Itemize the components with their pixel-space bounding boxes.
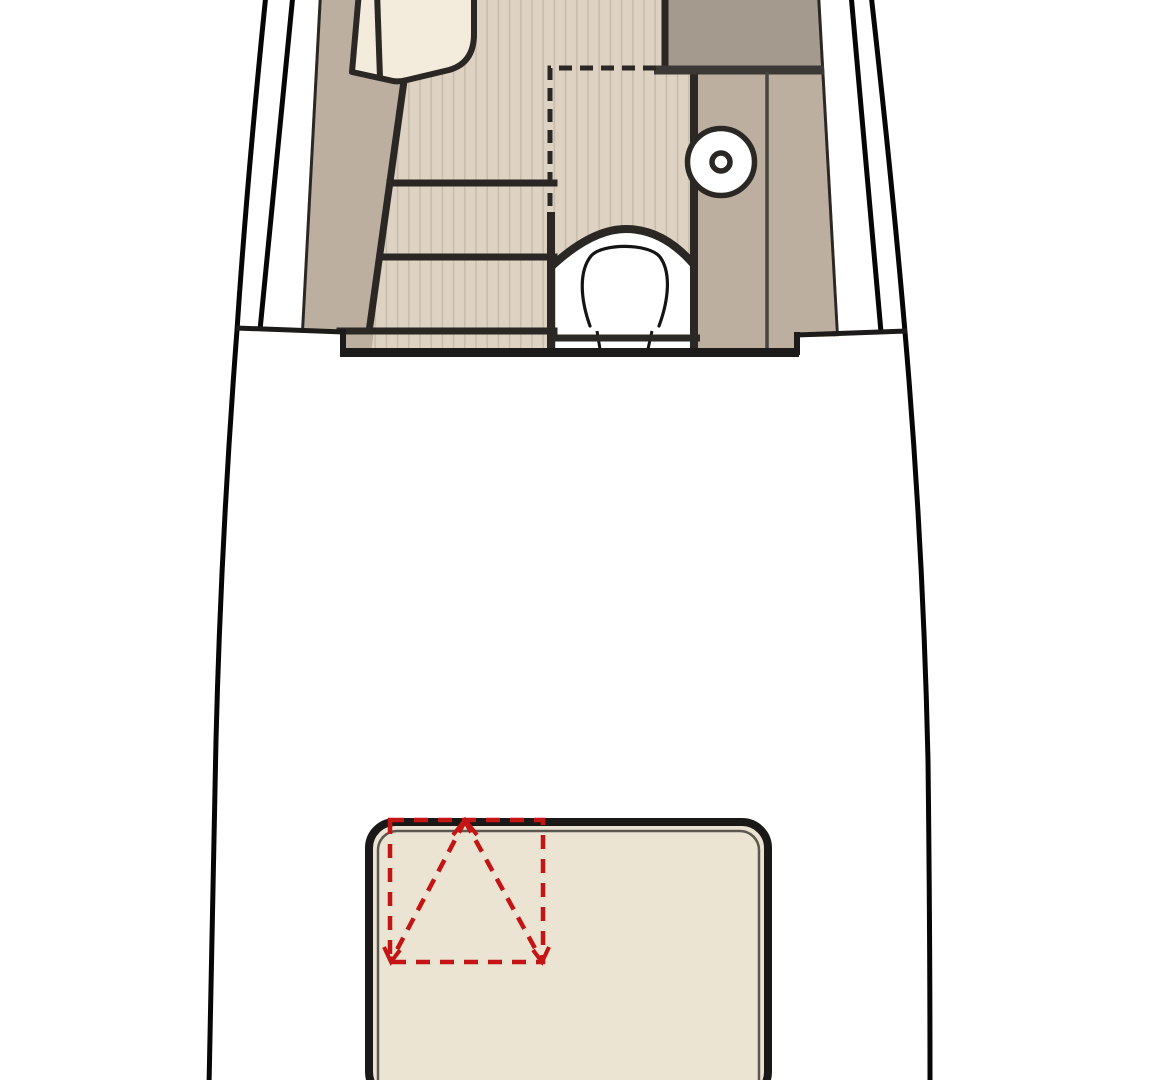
foredeck bbox=[369, 820, 768, 1080]
sink-icon bbox=[688, 129, 755, 196]
settee-cushion-divider bbox=[377, 0, 380, 78]
aft-dark-counter bbox=[665, 0, 824, 66]
settee-cushion bbox=[352, 0, 474, 81]
settee-seat bbox=[352, 0, 474, 81]
cabin-interior bbox=[295, 0, 847, 358]
foredeck-sunpad bbox=[369, 822, 768, 1080]
boat-deck-plan-canvas bbox=[0, 0, 1150, 1080]
sink-basin bbox=[688, 129, 755, 196]
boat-deck-plan bbox=[0, 0, 1150, 1080]
